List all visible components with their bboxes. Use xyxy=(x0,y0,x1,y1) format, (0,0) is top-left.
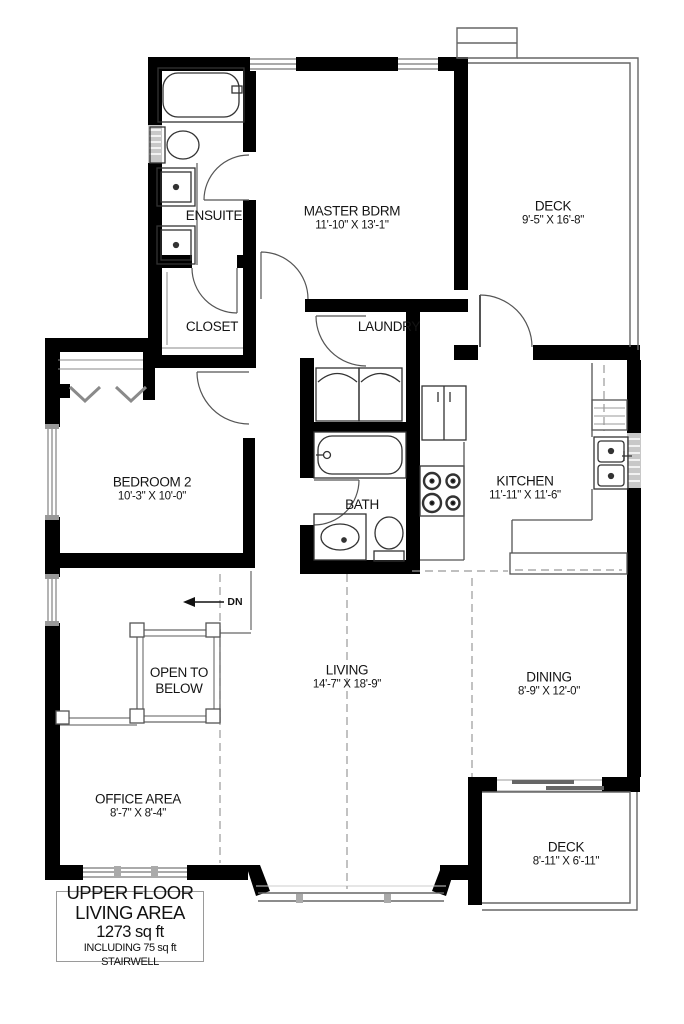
room-label-deck-bottom: DECK 8'-11" X 6'-11" xyxy=(533,839,599,868)
door-closet xyxy=(192,268,237,313)
refrigerator xyxy=(422,386,466,440)
room-name: OFFICE AREA xyxy=(95,791,181,807)
title-area-value: 1273 sq ft xyxy=(96,923,163,942)
room-label-open-to-below: OPEN TO BELOW xyxy=(136,665,222,697)
title-line-1: UPPER FLOOR xyxy=(66,883,193,903)
door-master xyxy=(261,252,308,299)
window-master-1 xyxy=(250,57,296,71)
door-ensuite xyxy=(204,155,249,200)
stairs-down-arrow xyxy=(183,597,224,607)
room-name: KITCHEN xyxy=(489,473,561,489)
deck-top-outline xyxy=(457,28,638,350)
door-deck xyxy=(480,295,532,347)
dashed-break-lines xyxy=(220,365,622,889)
room-name: ENSUITE xyxy=(186,208,242,224)
room-name: DECK xyxy=(533,839,599,855)
stairwell-railing xyxy=(56,571,251,725)
title-note: INCLUDING 75 sq ft STAIRWELL xyxy=(57,942,203,970)
stairs-dn-label: DN xyxy=(227,596,242,608)
kitchen-sink xyxy=(594,437,632,489)
bay-window xyxy=(256,886,446,903)
room-label-bath: BATH xyxy=(345,497,379,513)
room-name: DECK xyxy=(522,198,584,214)
room-name: LAUNDRY xyxy=(358,319,420,335)
room-label-living: LIVING 14'-7" X 18'-9" xyxy=(313,662,381,691)
window-left-lower xyxy=(45,574,60,626)
room-dimensions: 8'-7" X 8'-4" xyxy=(95,807,181,821)
room-dimensions: 14'-7" X 18'-9" xyxy=(313,678,381,692)
room-label-dining: DINING 8'-9" X 12'-0" xyxy=(518,669,580,698)
room-name: DINING xyxy=(518,669,580,685)
room-label-deck-top: DECK 9'-5" X 16'-8" xyxy=(522,198,584,227)
kitchen-counter xyxy=(420,363,627,574)
floor-plan: ENSUITE MASTER BDRM 11'-10" X 13'-1" DEC… xyxy=(0,0,684,1024)
room-dimensions: 9'-5" X 16'-8" xyxy=(522,214,584,228)
toilet-bath xyxy=(374,517,404,561)
floor-plan-drawing xyxy=(0,0,684,1024)
room-label-office-area: OFFICE AREA 8'-7" X 8'-4" xyxy=(95,791,181,820)
room-name: BATH xyxy=(345,497,379,513)
washer-dryer xyxy=(316,368,402,421)
room-dimensions: 8'-11" X 6'-11" xyxy=(533,855,599,869)
room-dimensions: 11'-11" X 11'-6" xyxy=(489,489,561,503)
room-label-kitchen: KITCHEN 11'-11" X 11'-6" xyxy=(489,473,561,502)
window-master-2 xyxy=(398,57,438,71)
title-line-2: LIVING AREA xyxy=(75,903,185,923)
window-bedroom2 xyxy=(45,424,60,520)
room-label-ensuite: ENSUITE xyxy=(186,208,242,224)
stove xyxy=(420,466,464,516)
bathtub xyxy=(314,432,406,478)
room-dimensions: 10'-3" X 10'-0" xyxy=(113,490,191,504)
window-office xyxy=(83,866,187,878)
room-name: MASTER BDRM xyxy=(304,203,400,219)
room-label-closet: CLOSET xyxy=(186,319,238,335)
room-dimensions: 8'-9" X 12'-0" xyxy=(518,685,580,699)
room-name: OPEN TO BELOW xyxy=(136,665,222,697)
vanity-sink-bath xyxy=(314,514,366,560)
door-bedroom2 xyxy=(197,372,249,424)
room-name: CLOSET xyxy=(186,319,238,335)
bathtub-ensuite xyxy=(158,68,244,122)
room-label-master-bdrm: MASTER BDRM 11'-10" X 13'-1" xyxy=(304,203,400,232)
bifold-doors-bedroom2-closet xyxy=(70,387,146,401)
room-name: LIVING xyxy=(313,662,381,678)
room-label-laundry: LAUNDRY xyxy=(358,319,420,335)
room-name: BEDROOM 2 xyxy=(113,474,191,490)
sliding-door xyxy=(497,780,604,791)
room-dimensions: 11'-10" X 13'-1" xyxy=(304,219,400,233)
window-kitchen xyxy=(627,433,641,488)
title-block: UPPER FLOOR LIVING AREA 1273 sq ft INCLU… xyxy=(56,891,204,962)
room-label-bedroom2: BEDROOM 2 10'-3" X 10'-0" xyxy=(113,474,191,503)
